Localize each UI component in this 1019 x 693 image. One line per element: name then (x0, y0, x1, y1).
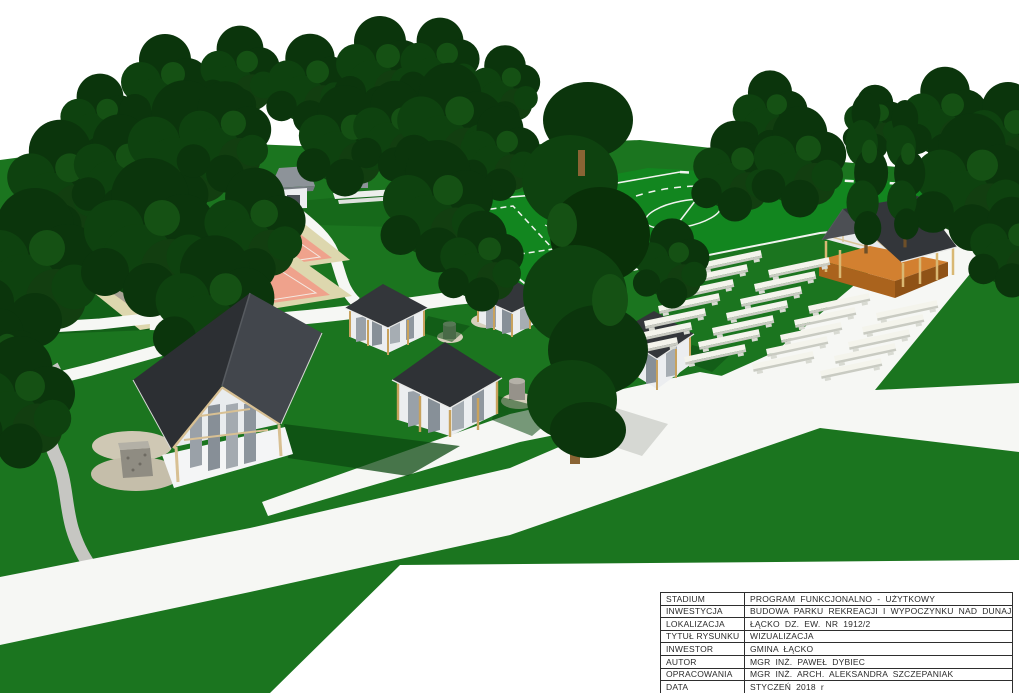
titleblock-value: PROGRAM FUNKCJONALNO - UŻYTKOWY (745, 593, 1013, 606)
titleblock-label: DATA (661, 681, 745, 693)
titleblock-label: OPRACOWANIA (661, 668, 745, 681)
title-block-row: INWESTOR GMINA ŁĄCKO (661, 643, 1013, 656)
title-block-row: DATA STYCZEŃ 2018 r (661, 681, 1013, 693)
titleblock-label: LOKALIZACJA (661, 618, 745, 631)
title-block: STADIUM PROGRAM FUNKCJONALNO - UŻYTKOWY … (660, 592, 1013, 693)
title-block-row: LOKALIZACJA ŁĄCKO DZ. EW. NR 1912/2 (661, 618, 1013, 631)
title-block-row: INWESTYCJA BUDOWA PARKU REKREACJI I WYPO… (661, 605, 1013, 618)
title-block-row: STADIUM PROGRAM FUNKCJONALNO - UŻYTKOWY (661, 593, 1013, 606)
title-block-row: TYTUŁ RYSUNKU WIZUALIZACJA (661, 630, 1013, 643)
titleblock-value: ŁĄCKO DZ. EW. NR 1912/2 (745, 618, 1013, 631)
titleblock-label: TYTUŁ RYSUNKU (661, 630, 745, 643)
titleblock-value: MGR INŻ. ARCH. ALEKSANDRA SZCZEPANIAK (745, 668, 1013, 681)
titleblock-label: AUTOR (661, 655, 745, 668)
titleblock-label: INWESTYCJA (661, 605, 745, 618)
park-3d-visualization (0, 0, 1019, 693)
titleblock-label: STADIUM (661, 593, 745, 606)
title-block-row: AUTOR MGR INŻ. PAWEŁ DYBIEC (661, 655, 1013, 668)
titleblock-value: WIZUALIZACJA (745, 630, 1013, 643)
titleblock-label: INWESTOR (661, 643, 745, 656)
visualization-sheet: STADIUM PROGRAM FUNKCJONALNO - UŻYTKOWY … (0, 0, 1019, 693)
titleblock-value: BUDOWA PARKU REKREACJI I WYPOCZYNKU NAD … (745, 605, 1013, 618)
titleblock-value: STYCZEŃ 2018 r (745, 681, 1013, 693)
titleblock-value: MGR INŻ. PAWEŁ DYBIEC (745, 655, 1013, 668)
titleblock-value: GMINA ŁĄCKO (745, 643, 1013, 656)
title-block-row: OPRACOWANIA MGR INŻ. ARCH. ALEKSANDRA SZ… (661, 668, 1013, 681)
